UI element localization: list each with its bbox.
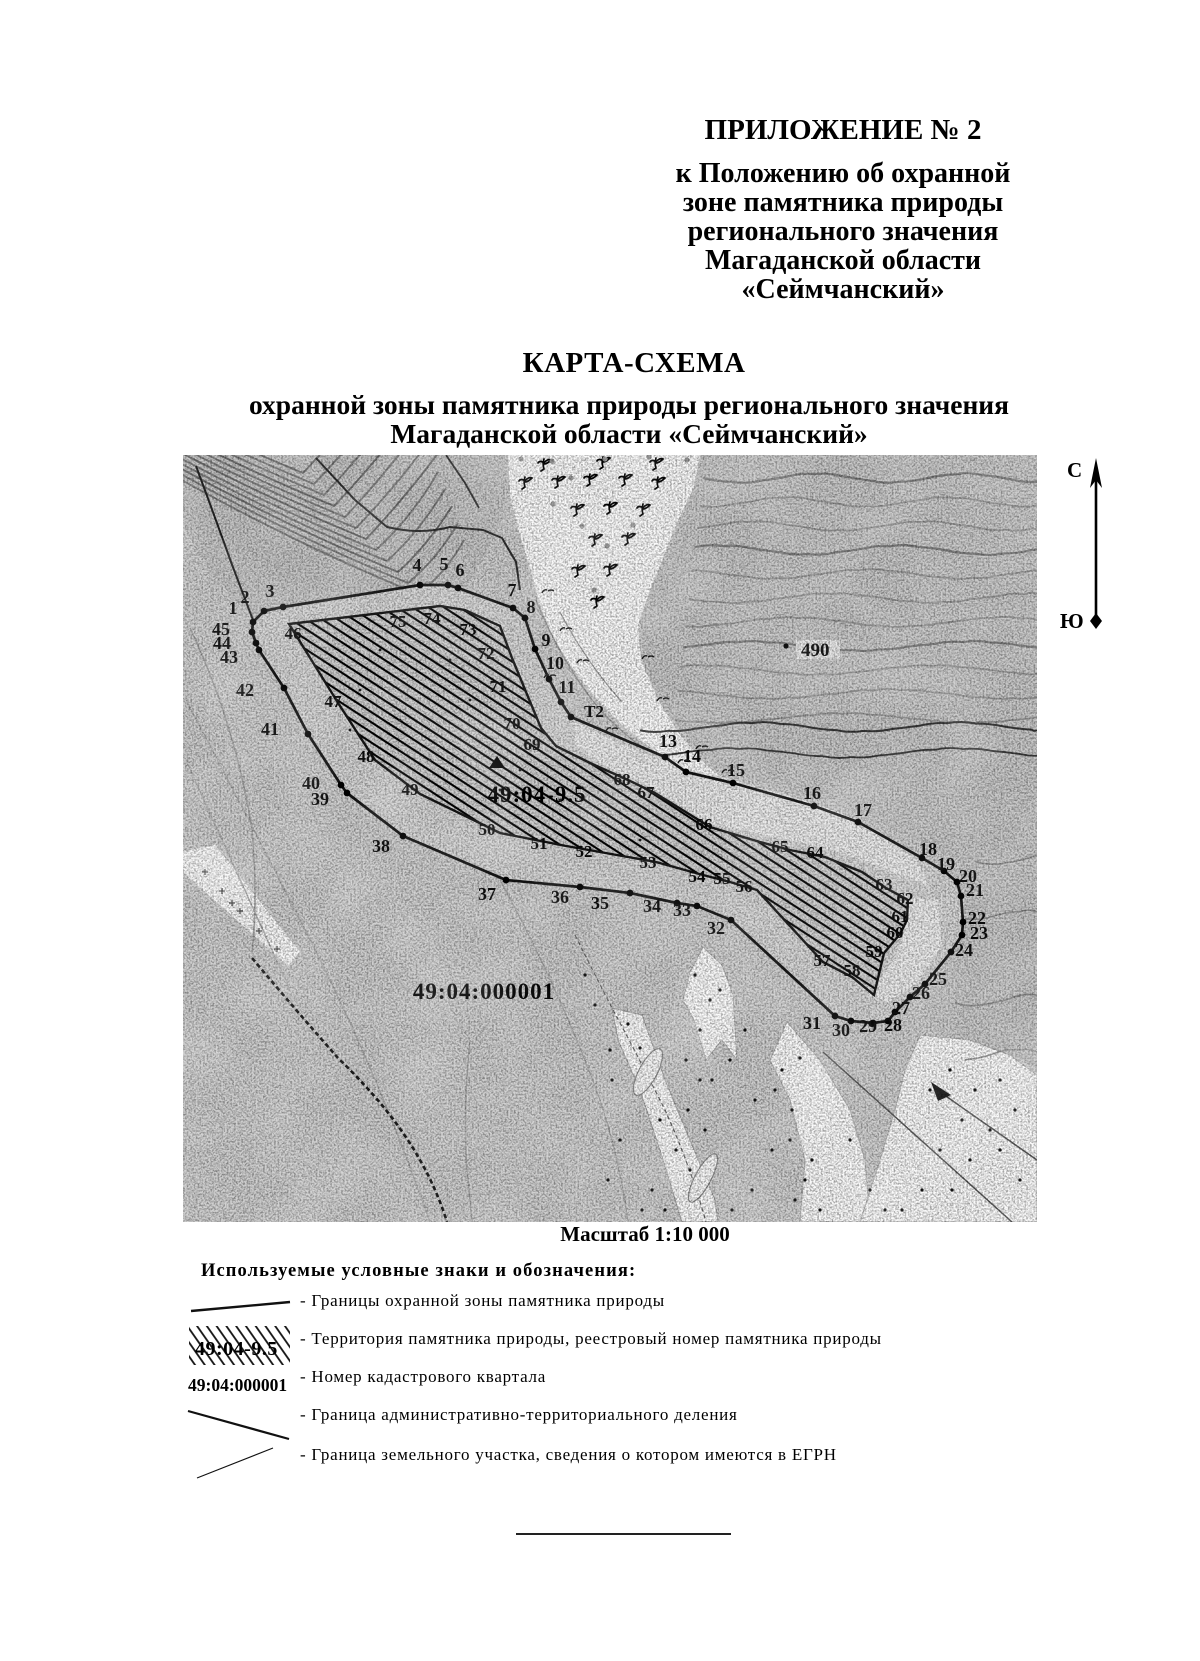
- svg-text:49:04:000001: 49:04:000001: [188, 1375, 287, 1395]
- svg-text:49:04-9.5: 49:04-9.5: [195, 1338, 278, 1360]
- svg-text:С: С: [1067, 458, 1082, 482]
- svg-text:Ю: Ю: [1060, 609, 1084, 633]
